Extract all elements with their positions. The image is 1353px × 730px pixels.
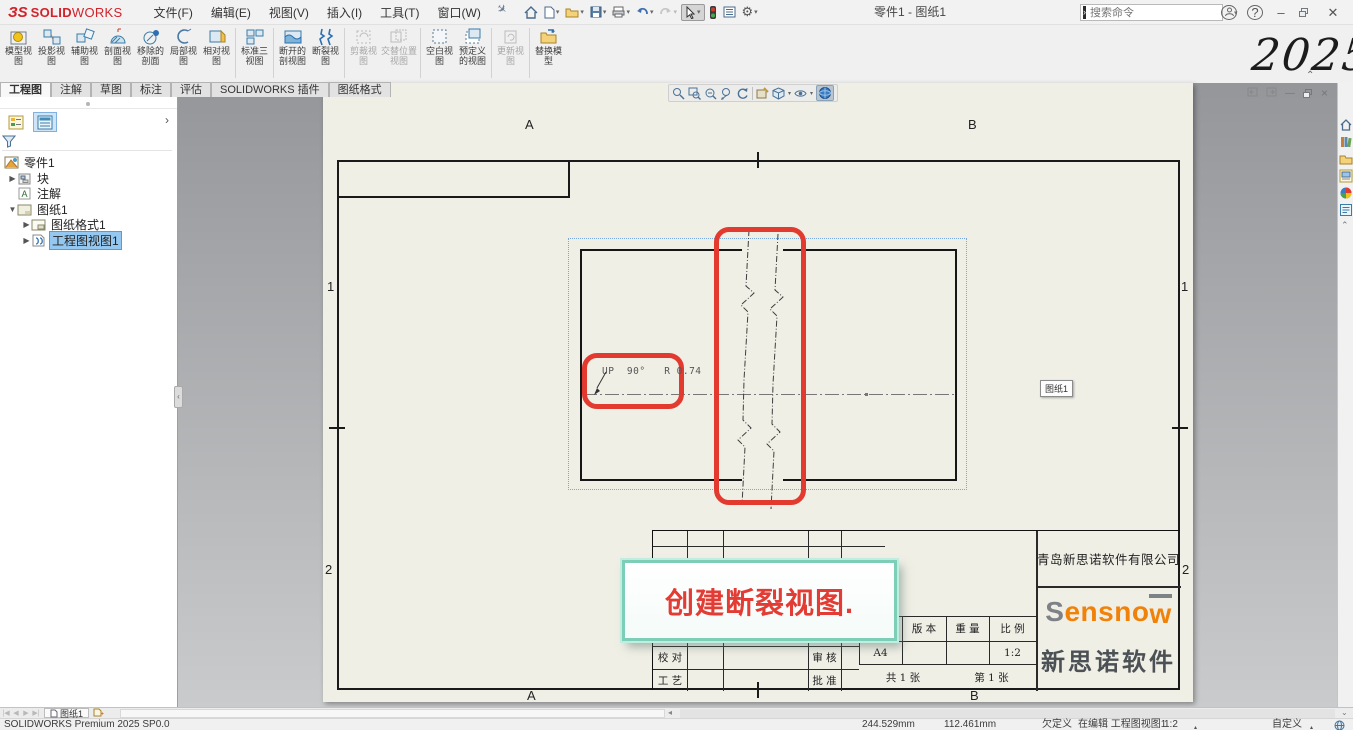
- units-caret-icon[interactable]: ▴: [1310, 722, 1313, 730]
- bend-note-leader-arrow: [590, 369, 610, 397]
- tab-sheet-format[interactable]: 图纸格式: [329, 82, 391, 97]
- prev-window-icon[interactable]: [1247, 87, 1258, 100]
- model-view-icon: [9, 27, 29, 47]
- window-controls: ? – ✕: [1221, 0, 1353, 25]
- sheet-format-icon: [31, 218, 46, 231]
- horizontal-scrollbar-thumb[interactable]: [120, 709, 665, 718]
- zone-label-right-2: 2: [1182, 562, 1189, 577]
- sheet-properties-icon[interactable]: [756, 87, 769, 100]
- next-sheet-icon[interactable]: ▶: [22, 709, 30, 717]
- solidworks-2025-watermark: 2025: [1249, 30, 1353, 81]
- save-button[interactable]: ▾: [588, 4, 609, 20]
- toolbar-separator: [420, 28, 421, 78]
- zoom-selection-icon[interactable]: [720, 87, 733, 100]
- coord-x: 244.529mm: [862, 719, 915, 730]
- toolbar-separator: [491, 28, 492, 78]
- add-sheet-icon[interactable]: [93, 708, 104, 719]
- custom-properties-icon[interactable]: [1339, 203, 1353, 217]
- sheet-icon: [17, 203, 32, 216]
- update-view-icon: [501, 27, 521, 47]
- toolbar-separator: [344, 28, 345, 78]
- annotations-icon: A: [17, 187, 32, 200]
- panel-expand-chevron[interactable]: ›: [165, 113, 169, 127]
- toolbar-separator: [235, 28, 236, 78]
- scroll-left-icon[interactable]: ◂: [668, 708, 672, 717]
- pin-menu-icon[interactable]: ✈: [488, 0, 510, 24]
- sheet-top-left-block: [337, 160, 570, 198]
- alternate-position-icon: [389, 27, 409, 47]
- detail-view-icon: [174, 27, 194, 47]
- zone-label-bottom-a: A: [527, 688, 536, 703]
- menu-edit[interactable]: 编辑(E): [202, 1, 260, 24]
- task-pane-scroll-up-icon[interactable]: ⌃: [1341, 220, 1349, 231]
- sheet-tab-bar: |◀ ◀ ▶ ▶| 图纸1 ◂ ⌄: [0, 707, 1353, 718]
- print-button[interactable]: ▾: [610, 4, 632, 20]
- last-sheet-icon[interactable]: ▶|: [32, 709, 40, 717]
- cmd-broken-out-section[interactable]: 断开的剖视图: [277, 27, 308, 66]
- tab-annotation[interactable]: 注解: [51, 82, 91, 97]
- tree-filter-row[interactable]: [2, 135, 172, 151]
- coord-y: 112.461mm: [944, 719, 996, 730]
- sheet-tab-sheet1[interactable]: 图纸1: [44, 708, 89, 718]
- collapse-chevron-icon[interactable]: ⌃: [1306, 70, 1314, 81]
- document-title: 零件1 - 图纸1: [810, 0, 1010, 25]
- search-commands-box[interactable]: › ▾: [1080, 4, 1223, 21]
- doc-close-button[interactable]: ×: [1321, 86, 1328, 100]
- heads-up-toolbar: ▾ ▾: [668, 84, 838, 102]
- design-library-icon[interactable]: [1339, 135, 1353, 149]
- zone-label-top-b: B: [968, 117, 977, 132]
- open-button[interactable]: ▾: [563, 4, 586, 20]
- zoom-area-icon[interactable]: [688, 87, 701, 100]
- cmd-alternate-position-view[interactable]: 交替位置视图: [381, 27, 417, 66]
- editing-state: 在编辑 工程图视图1: [1078, 719, 1166, 730]
- cmd-break-view[interactable]: 断裂视图: [310, 27, 341, 66]
- panel-splitter-handle[interactable]: ‹: [174, 386, 183, 408]
- cmd-predefined-view[interactable]: 预定义的视图: [457, 27, 488, 66]
- tree-item-sheet1[interactable]: ▼ 图纸1: [0, 202, 177, 218]
- first-sheet-icon[interactable]: |◀: [2, 709, 10, 717]
- row-review: 审 核: [808, 646, 841, 669]
- cmd-empty-view[interactable]: 空白视图: [424, 27, 455, 66]
- row-approve: 批 准: [808, 669, 841, 691]
- replace-model-icon: [539, 27, 559, 47]
- cmd-section-view[interactable]: 剖面视图: [102, 27, 133, 66]
- display-style-caret[interactable]: ▾: [788, 90, 791, 97]
- solidworks-logo-icon: ЗS: [8, 4, 28, 21]
- row-process: 工 艺: [653, 669, 687, 691]
- expand-arrow-icon[interactable]: ▶: [8, 174, 17, 183]
- header-scale: 比 例: [989, 616, 1036, 641]
- command-manager: 模型视图 投影视图 辅助视图 剖面视图 移除的剖面 局部视图 相对视图 标准三视…: [0, 25, 1353, 82]
- zone-label-left-2: 2: [325, 562, 332, 577]
- new-document-button[interactable]: ▾: [542, 4, 562, 21]
- projected-view-icon: [42, 27, 62, 47]
- horizontal-scrollbar-track[interactable]: [680, 709, 1335, 718]
- sheet-number: 第 1 张: [947, 664, 1036, 691]
- definition-state: 欠定义: [1042, 719, 1072, 730]
- feature-tree: 零件1 ▶ 块 A 注解 ▼ 图纸1 ▶ 图纸格式1 ▶: [0, 155, 177, 248]
- close-button[interactable]: ✕: [1325, 5, 1341, 21]
- predefined-view-icon: [463, 27, 483, 47]
- sheet-scale[interactable]: 1:2: [1164, 719, 1178, 730]
- cmd-model-view[interactable]: 模型视图: [3, 27, 34, 66]
- cmd-replace-model[interactable]: 替换模型: [533, 27, 564, 66]
- minimize-button[interactable]: –: [1273, 5, 1289, 20]
- hud-separator: [752, 87, 753, 100]
- display-style-icon[interactable]: [772, 87, 785, 100]
- part-icon: [4, 156, 19, 169]
- solidworks-window: ЗS SOLIDWORKS 文件(F) 编辑(E) 视图(V) 插入(I) 工具…: [0, 0, 1353, 730]
- menu-insert[interactable]: 插入(I): [318, 1, 371, 24]
- view-palette-icon[interactable]: [1339, 169, 1353, 183]
- search-input[interactable]: [1090, 7, 1232, 19]
- filter-funnel-icon: [2, 135, 16, 148]
- sheet-page-icon: [50, 709, 58, 718]
- redo-button[interactable]: ▾: [657, 5, 679, 20]
- tab-dimension[interactable]: 标注: [131, 82, 171, 97]
- doc-minimize-button[interactable]: —: [1285, 88, 1295, 99]
- select-tool-button[interactable]: ▾: [681, 4, 705, 21]
- standard-3-view-icon: [245, 27, 265, 47]
- rebuild-button[interactable]: [707, 4, 719, 21]
- zoom-fit-icon[interactable]: [672, 87, 685, 100]
- view-orientation-icon[interactable]: [816, 85, 834, 101]
- zone-tick: [1172, 427, 1188, 429]
- menu-bar: 文件(F) 编辑(E) 视图(V) 插入(I) 工具(T) 窗口(W) ✈: [145, 1, 504, 24]
- rotate-view-icon[interactable]: [736, 87, 749, 100]
- display-settings-button[interactable]: [721, 4, 738, 20]
- tab-addins[interactable]: SOLIDWORKS 插件: [211, 82, 329, 97]
- bend-note: UP 90° R 0.74: [602, 366, 702, 377]
- undo-button[interactable]: ▾: [634, 5, 656, 20]
- cmd-auxiliary-view[interactable]: 辅助视图: [69, 27, 100, 66]
- sheet-size-value: A4: [859, 641, 902, 664]
- help-icon[interactable]: ?: [1247, 5, 1263, 20]
- menu-window[interactable]: 窗口(W): [429, 1, 490, 24]
- tree-item-blocks[interactable]: ▶ 块: [0, 171, 177, 187]
- tree-root-part[interactable]: 零件1: [0, 155, 177, 171]
- expand-arrow-icon[interactable]: ▶: [22, 220, 31, 229]
- doc-restore-button[interactable]: [1303, 89, 1313, 98]
- crop-view-icon: [354, 27, 374, 47]
- sheet-nav-arrows: |◀ ◀ ▶ ▶|: [2, 709, 40, 717]
- row-proof: 校 对: [653, 646, 687, 669]
- tree-item-drawing-view1[interactable]: ▶ 工程图视图1: [0, 233, 177, 249]
- menu-file[interactable]: 文件(F): [145, 1, 202, 24]
- file-explorer-icon[interactable]: [1339, 152, 1353, 166]
- zone-tick: [757, 152, 759, 168]
- scale-caret-icon[interactable]: ▴: [1194, 722, 1197, 730]
- search-logo-icon: ›: [1083, 6, 1086, 19]
- section-view-icon: [108, 27, 128, 47]
- tutorial-callout: 创建断裂视图.: [622, 560, 897, 641]
- drawing-view-icon: [31, 234, 46, 247]
- property-manager-tab[interactable]: [33, 112, 57, 132]
- svg-text:A: A: [21, 189, 27, 199]
- header-version: 版 本: [902, 616, 946, 641]
- company-name: 青岛新思诺软件有限公司: [1036, 531, 1181, 586]
- part-outline-right: [783, 249, 957, 481]
- document-window-controls: — ×: [1247, 86, 1328, 100]
- auxiliary-view-icon: [75, 27, 95, 47]
- header-weight: 重 量: [946, 616, 989, 641]
- break-view-icon: [316, 27, 336, 47]
- status-bar: SOLIDWORKS Premium 2025 SP0.0 244.529mm …: [0, 718, 1353, 730]
- task-pane-scroll-down-icon[interactable]: ⌄: [1341, 708, 1348, 717]
- view-center-marker: [865, 393, 868, 396]
- ribbon-tab-bar: 工程图 注解 草图 标注 评估 SOLIDWORKS 插件 图纸格式: [0, 82, 332, 97]
- toolbar-separator: [273, 28, 274, 78]
- sensnow-logo-cn: 新思诺软件: [1036, 633, 1181, 685]
- tab-sketch[interactable]: 草图: [91, 82, 131, 97]
- sensnow-logo: Sensnow: [1036, 591, 1181, 633]
- tab-drawing[interactable]: 工程图: [0, 82, 51, 97]
- panel-handle[interactable]: [0, 97, 177, 109]
- options-gear-button[interactable]: ⚙▾: [740, 2, 760, 22]
- broken-out-section-icon: [283, 27, 303, 47]
- toolbar-separator: [529, 28, 530, 78]
- tag-globe-icon[interactable]: [1334, 720, 1345, 730]
- menu-tools[interactable]: 工具(T): [371, 1, 428, 24]
- app-version-text: SOLIDWORKS Premium 2025 SP0.0: [4, 719, 170, 730]
- total-sheets: 共 1 张: [859, 664, 947, 691]
- zone-label-right-1: 1: [1181, 279, 1188, 294]
- zone-label-top-a: A: [525, 117, 534, 132]
- scale-value: 1:2: [989, 641, 1036, 664]
- solidworks-logo: ЗS SOLIDWORKS: [8, 4, 123, 21]
- prev-sheet-icon[interactable]: ◀: [12, 709, 20, 717]
- menu-view[interactable]: 视图(V): [260, 1, 318, 24]
- feature-tree-tab[interactable]: [4, 112, 28, 132]
- removed-section-icon: [141, 27, 161, 47]
- panel-tab-strip: [4, 112, 57, 132]
- home-button[interactable]: [522, 4, 540, 21]
- empty-view-icon: [430, 27, 450, 47]
- zoom-in-out-icon[interactable]: [704, 87, 717, 100]
- zone-label-left-1: 1: [327, 279, 334, 294]
- home-tab-icon[interactable]: [1339, 118, 1353, 132]
- cmd-removed-section[interactable]: 移除的剖面: [135, 27, 166, 66]
- break-highlight-box: [714, 227, 806, 505]
- zone-tick: [329, 427, 345, 429]
- restore-button[interactable]: [1299, 8, 1315, 17]
- units-setting[interactable]: 自定义: [1272, 719, 1302, 730]
- cmd-projected-view[interactable]: 投影视图: [36, 27, 67, 66]
- task-pane-strip: ⌃: [1337, 83, 1353, 707]
- cmd-detail-view[interactable]: 局部视图: [168, 27, 199, 66]
- expand-arrow-icon[interactable]: ▶: [22, 236, 31, 245]
- cmd-update-view[interactable]: 更新视图: [495, 27, 526, 66]
- quick-access-toolbar: ▾ ▾ ▾ ▾ ▾ ▾ ▾ ⚙▾: [522, 2, 760, 22]
- collapse-arrow-icon[interactable]: ▼: [8, 205, 17, 214]
- login-icon[interactable]: [1221, 5, 1237, 20]
- cmd-standard-3-view[interactable]: 标准三视图: [239, 27, 270, 66]
- title-bar: ЗS SOLIDWORKS 文件(F) 编辑(E) 视图(V) 插入(I) 工具…: [0, 0, 1353, 25]
- feature-manager-panel: › 零件1 ▶ 块 A 注解 ▼ 图纸1 ▶: [0, 97, 178, 707]
- sheet-tooltip: 图纸1: [1040, 380, 1073, 397]
- blocks-icon: [17, 172, 32, 185]
- hide-show-caret[interactable]: ▾: [810, 90, 813, 97]
- next-window-icon[interactable]: [1266, 87, 1277, 100]
- hide-show-items-icon[interactable]: [794, 87, 807, 100]
- tab-evaluate[interactable]: 评估: [171, 82, 211, 97]
- tree-item-annotations[interactable]: A 注解: [0, 186, 177, 202]
- cmd-relative-view[interactable]: 相对视图: [201, 27, 232, 66]
- relative-view-icon: [207, 27, 227, 47]
- appearances-icon[interactable]: [1339, 186, 1353, 200]
- cmd-crop-view[interactable]: 剪裁视图: [348, 27, 379, 66]
